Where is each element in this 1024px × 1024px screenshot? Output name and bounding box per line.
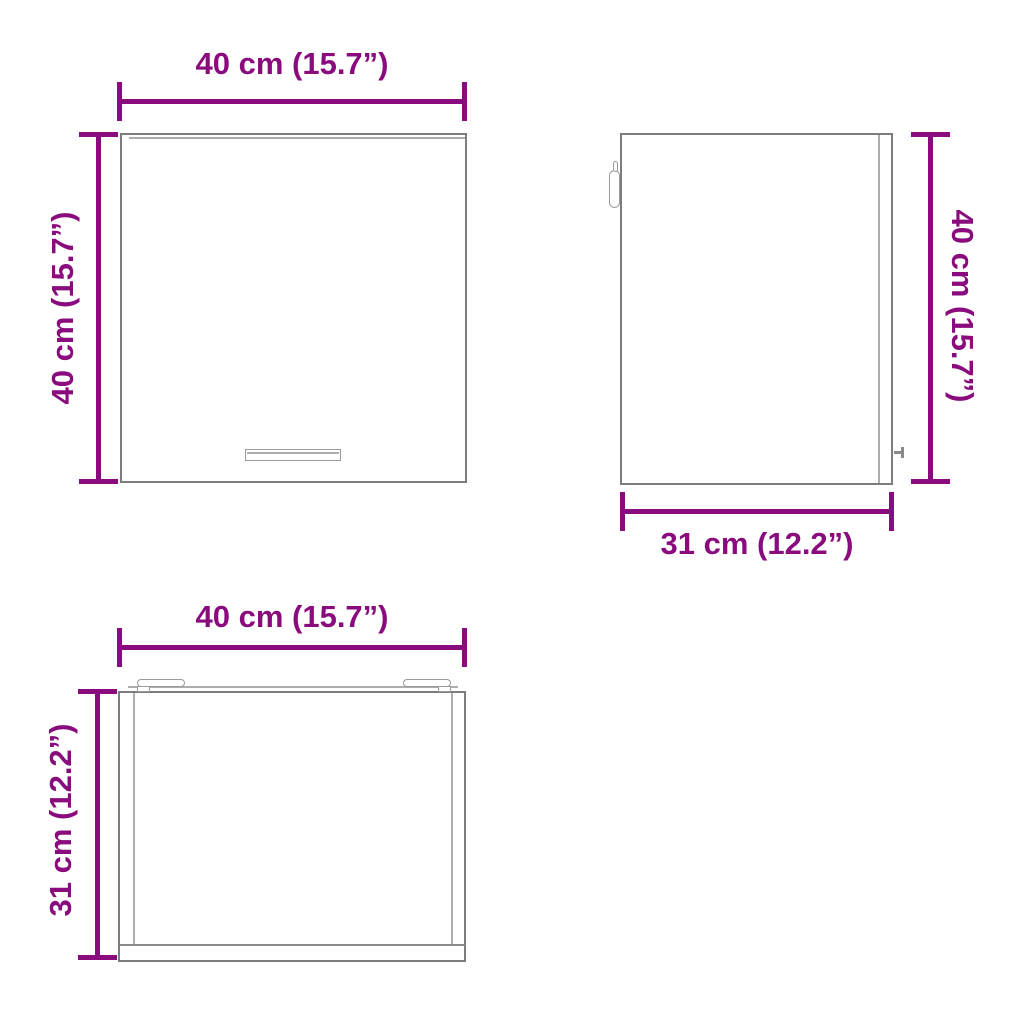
- side-hinge-pin: [613, 161, 618, 172]
- front-height-label: 40 cm (15.7”): [45, 212, 81, 405]
- front-width-dim-tick-right: [462, 82, 467, 121]
- top-left-wall-line: [133, 693, 135, 945]
- front-door-handle-inner-line: [247, 452, 339, 454]
- cabinet-dimension-diagram: 40 cm (15.7”) 40 cm (15.7”): [0, 0, 1024, 1024]
- top-right-wall-line: [451, 693, 453, 945]
- front-width-label: 40 cm (15.7”): [196, 46, 389, 82]
- top-cabinet-outline: [118, 691, 466, 962]
- top-width-dim-tick-right: [462, 628, 467, 667]
- front-door-handle: [245, 449, 341, 461]
- front-height-dim-tick-bottom: [79, 479, 118, 484]
- side-depth-dim-tick-right: [889, 492, 894, 531]
- side-depth-label: 31 cm (12.2”): [661, 526, 854, 562]
- top-depth-dim-tick-top: [78, 689, 117, 694]
- top-right-bracket-plate: [438, 686, 451, 692]
- front-height-dim-line: [96, 132, 101, 484]
- side-knob-head: [901, 447, 904, 458]
- top-left-bracket-plate: [137, 686, 150, 692]
- side-height-dim-tick-top: [911, 132, 950, 137]
- side-height-dim-line: [928, 132, 933, 484]
- side-cabinet-outline: [620, 133, 893, 485]
- front-height-dim-tick-top: [79, 132, 118, 137]
- front-width-dim-tick-left: [117, 82, 122, 121]
- top-door-strip-line: [120, 944, 465, 946]
- side-height-label: 40 cm (15.7”): [944, 210, 980, 403]
- side-depth-dim-tick-left: [620, 492, 625, 531]
- top-depth-dim-line: [95, 689, 100, 960]
- side-height-dim-tick-bottom: [911, 479, 950, 484]
- front-cabinet-outline: [120, 133, 467, 483]
- top-width-dim-tick-left: [117, 628, 122, 667]
- top-width-label: 40 cm (15.7”): [196, 599, 389, 635]
- top-width-dim-line: [117, 645, 467, 650]
- side-depth-dim-line: [620, 509, 894, 514]
- top-depth-label: 31 cm (12.2”): [43, 724, 79, 917]
- side-hinge: [609, 170, 620, 208]
- side-door-edge-line: [878, 135, 880, 483]
- front-width-dim-line: [117, 99, 467, 104]
- front-door-top-gap-line: [129, 137, 465, 139]
- top-depth-dim-tick-bottom: [78, 955, 117, 960]
